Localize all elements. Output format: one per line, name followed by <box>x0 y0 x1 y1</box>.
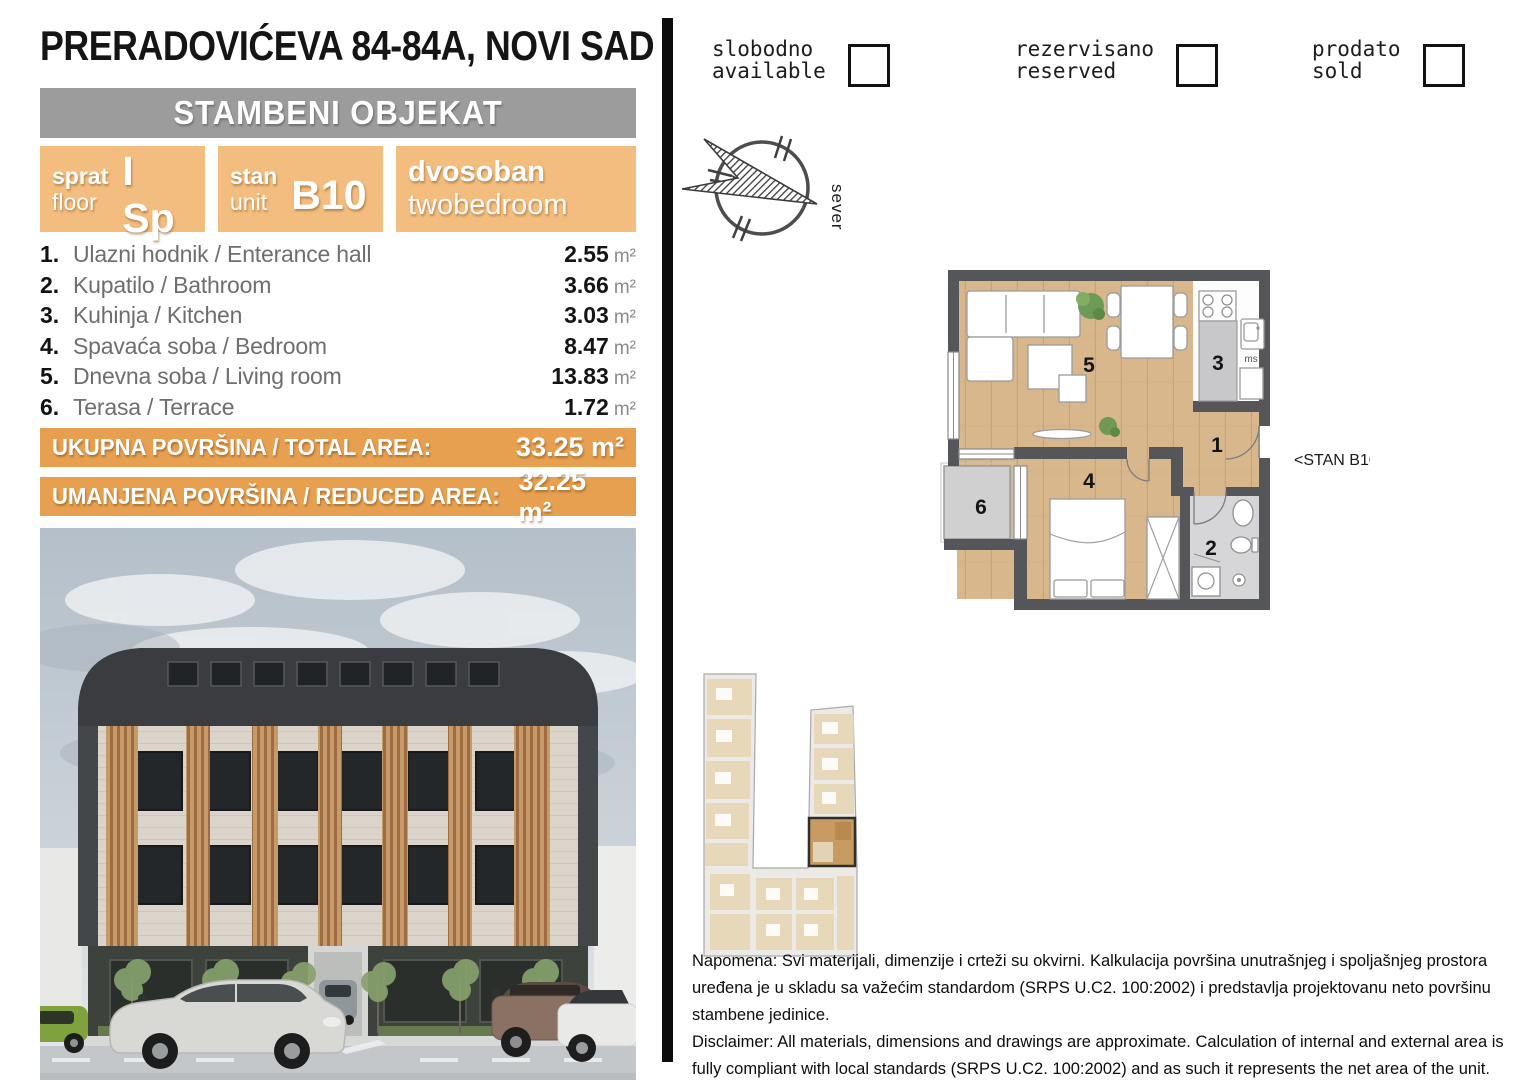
room-area: 13.83 <box>551 363 609 390</box>
room-row-4: 4. Spavaća soba / Bedroom 8.47 m² <box>40 333 636 364</box>
room-number: 5. <box>40 363 73 390</box>
legend-reserved-en: reserved <box>1015 60 1154 82</box>
page-title: PRERADOVIĆEVA 84-84A, NOVI SAD <box>40 22 635 70</box>
disclaimer-en: Disclaimer: All materials, dimensions an… <box>692 1029 1516 1080</box>
building-site-plan <box>690 666 860 963</box>
room-row-2: 2. Kupatilo / Bathroom 3.66 m² <box>40 272 636 303</box>
floor-info-box: sprat floor I Sp <box>40 146 205 232</box>
reduced-area-value: 32.25 m² <box>518 466 624 528</box>
legend-reserved-checkbox[interactable] <box>1176 44 1218 87</box>
layout-label-en: twobedroom <box>408 189 568 222</box>
building-type-label: STAMBENI OBJEKAT <box>173 94 502 132</box>
room-name: Kuhinja / Kitchen <box>73 302 564 329</box>
vertical-divider <box>662 18 673 1062</box>
unit-label-sr: stan <box>230 163 277 189</box>
flyer-page: PRERADOVIĆEVA 84-84A, NOVI SAD STAMBENI … <box>0 0 1528 1080</box>
room-number: 1. <box>40 241 73 268</box>
room-name: Kupatilo / Bathroom <box>73 272 564 299</box>
room-area: 3.03 <box>564 302 609 329</box>
kitchen-ms-label: ms <box>1244 354 1257 365</box>
legend-sold: prodato sold <box>1312 38 1465 87</box>
legend-reserved: rezervisano reserved <box>1015 38 1218 87</box>
unit-pointer-label: <STAN B10 <box>1294 452 1370 469</box>
plan-number-bedroom: 4 <box>1083 470 1095 493</box>
room-row-6: 6. Terasa / Terrace 1.72 m² <box>40 394 636 425</box>
room-number: 6. <box>40 394 73 421</box>
room-list: 1. Ulazni hodnik / Enterance hall 2.55 m… <box>40 241 636 424</box>
room-area-unit: m² <box>614 399 636 421</box>
unit-label-en: unit <box>230 189 277 215</box>
legend-reserved-sr: rezervisano <box>1015 38 1154 60</box>
room-area: 1.72 <box>564 394 609 421</box>
legend-sold-en: sold <box>1312 60 1401 82</box>
room-name: Terasa / Terrace <box>73 394 564 421</box>
room-area-unit: m² <box>614 307 636 329</box>
plan-number-living: 5 <box>1083 354 1095 377</box>
floor-value: I Sp <box>122 148 193 242</box>
room-name: Ulazni hodnik / Enterance hall <box>73 241 564 268</box>
building-type-banner: STAMBENI OBJEKAT <box>40 88 636 138</box>
floor-label-en: floor <box>52 189 108 215</box>
legend-sold-sr: prodato <box>1312 38 1401 60</box>
plan-number-bathroom: 2 <box>1205 537 1217 560</box>
room-area-unit: m² <box>614 277 636 299</box>
layout-info-box: dvosoban twobedroom <box>396 146 636 232</box>
compass-north-label: sever <box>828 184 847 231</box>
room-row-1: 1. Ulazni hodnik / Enterance hall 2.55 m… <box>40 241 636 272</box>
plan-number-hall: 1 <box>1211 434 1223 457</box>
room-area: 3.66 <box>564 272 609 299</box>
room-row-3: 3. Kuhinja / Kitchen 3.03 m² <box>40 302 636 333</box>
room-area: 8.47 <box>564 333 609 360</box>
building-render-svg <box>40 528 636 1080</box>
plan-number-terrace: 6 <box>975 496 987 519</box>
reduced-area-label: UMANJENA POVRŠINA / REDUCED AREA: <box>52 483 500 510</box>
room-area: 2.55 <box>564 241 609 268</box>
legend-available-sr: slobodno <box>712 38 826 60</box>
room-number: 2. <box>40 272 73 299</box>
total-area-value: 33.25 m² <box>516 432 624 463</box>
unit-floorplan: ms 5 3 <box>940 262 1370 629</box>
room-number: 4. <box>40 333 73 360</box>
room-name: Dnevna soba / Living room <box>73 363 551 390</box>
total-area-label: UKUPNA POVRŠINA / TOTAL AREA: <box>52 434 431 461</box>
legend-available-checkbox[interactable] <box>848 44 890 87</box>
compass: sever <box>680 126 855 261</box>
reduced-area-banner: UMANJENA POVRŠINA / REDUCED AREA: 32.25 … <box>40 477 636 516</box>
legend-sold-checkbox[interactable] <box>1423 44 1465 87</box>
room-area-unit: m² <box>614 338 636 360</box>
legend-available-en: available <box>712 60 826 82</box>
floorplan-svg: ms 5 3 <box>940 262 1370 624</box>
unit-info-box: stan unit B10 <box>218 146 383 232</box>
floor-label-sr: sprat <box>52 163 108 189</box>
north-arrow-icon: sever <box>680 126 855 256</box>
room-name: Spavaća soba / Bedroom <box>73 333 564 360</box>
room-area-unit: m² <box>614 246 636 268</box>
disclaimer-sr: Napomena: Svi materijali, dimenzije i cr… <box>692 948 1516 1029</box>
room-row-5: 5. Dnevna soba / Living room 13.83 m² <box>40 363 636 394</box>
building-render-image <box>40 528 636 1080</box>
plan-number-kitchen: 3 <box>1212 352 1224 375</box>
disclaimer-block: Napomena: Svi materijali, dimenzije i cr… <box>692 948 1516 1080</box>
room-area-unit: m² <box>614 368 636 390</box>
legend-available: slobodno available <box>712 38 890 87</box>
siteplan-svg <box>690 666 860 958</box>
room-number: 3. <box>40 302 73 329</box>
layout-label-sr: dvosoban <box>408 156 568 189</box>
total-area-banner: UKUPNA POVRŠINA / TOTAL AREA: 33.25 m² <box>40 428 636 467</box>
unit-value: B10 <box>291 172 366 219</box>
